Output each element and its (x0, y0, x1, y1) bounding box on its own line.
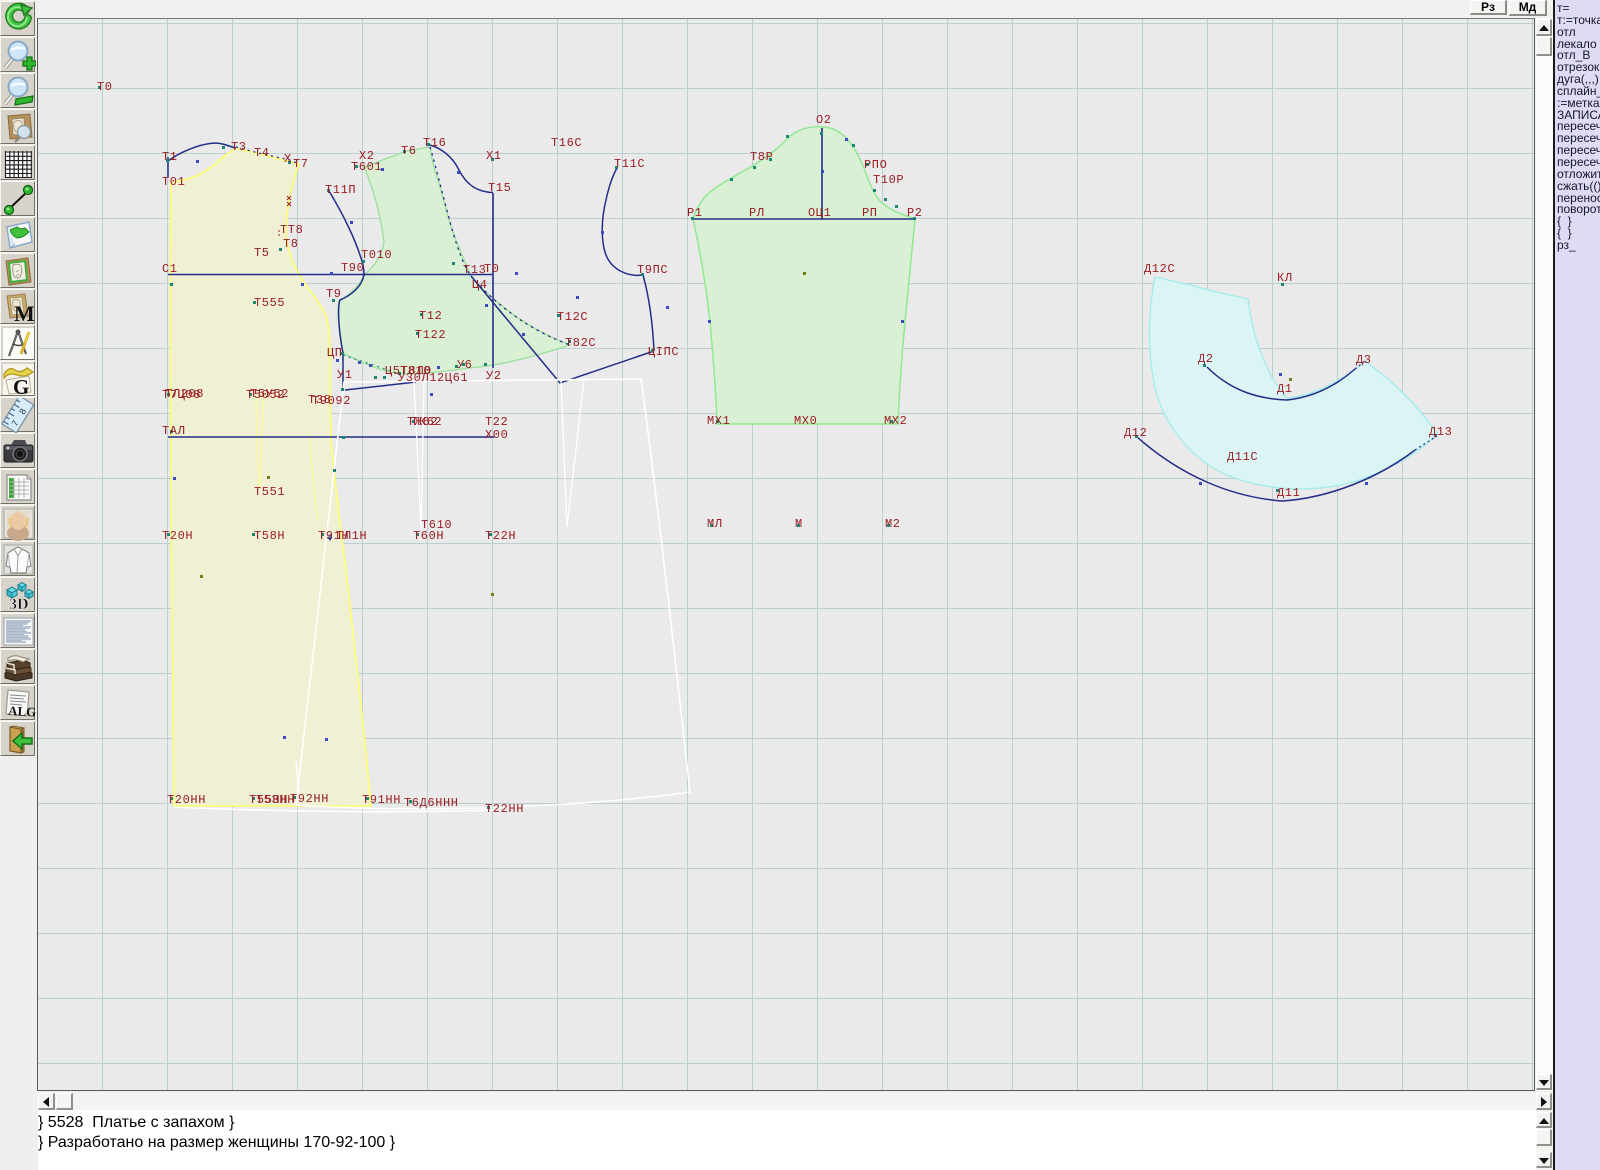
svg-text:Т555: Т555 (254, 296, 285, 310)
svg-text:Т11П: Т11П (325, 183, 356, 197)
svg-text:Т58Н: Т58Н (254, 529, 285, 543)
svg-text:Т92НН: Т92НН (290, 792, 329, 806)
svg-text:Д11С: Д11С (1227, 450, 1258, 464)
svg-text:Х: Х (284, 152, 292, 166)
svg-text:3D: 3D (9, 596, 29, 613)
svg-text:Т12С: Т12С (557, 310, 588, 324)
svg-text:РП: РП (862, 206, 878, 220)
svg-text:М2: М2 (885, 517, 901, 531)
svg-text:Т12: Т12 (419, 309, 442, 323)
svg-text:Д12: Д12 (1124, 426, 1147, 440)
svg-text:Т10Р: Т10Р (873, 173, 904, 187)
svg-text:МХ0: МХ0 (794, 414, 817, 428)
svg-text:Т60Н: Т60Н (413, 529, 444, 543)
svg-text:Т5: Т5 (254, 246, 270, 260)
svg-text:Т13: Т13 (463, 263, 486, 277)
svg-text:Д3: Д3 (1356, 353, 1372, 367)
svg-text:M: M (14, 301, 35, 325)
svg-text:Т0: Т0 (97, 80, 113, 94)
svg-text:Т20Н: Т20Н (162, 529, 193, 543)
svg-text:МХ1: МХ1 (707, 414, 730, 428)
svg-text:Т010: Т010 (361, 248, 392, 262)
svg-text:МЛ: МЛ (707, 517, 723, 531)
svg-text:Т9: Т9 (326, 287, 342, 301)
svg-text:ОЦ1: ОЦ1 (808, 206, 831, 220)
svg-text:Т9ПС: Т9ПС (637, 263, 668, 277)
svg-text:О2: О2 (816, 113, 832, 127)
svg-text:У1: У1 (337, 368, 353, 382)
svg-text:Д13: Д13 (1429, 425, 1452, 439)
svg-text:РЛ: РЛ (749, 206, 765, 220)
svg-text:У2: У2 (486, 369, 502, 383)
svg-text:ALG: ALG (8, 703, 36, 719)
svg-text:М: М (795, 517, 803, 531)
svg-text:Т122: Т122 (415, 328, 446, 342)
svg-text:G: G (13, 375, 29, 397)
svg-text:Д11: Д11 (1277, 486, 1300, 500)
svg-text:Т7: Т7 (293, 157, 309, 171)
svg-text:РПО: РПО (864, 158, 887, 172)
svg-text:Т16С: Т16С (551, 136, 582, 150)
svg-text:МХ2: МХ2 (884, 414, 907, 428)
svg-text:ЦIПС: ЦIПС (648, 345, 679, 359)
svg-text:Р1: Р1 (687, 206, 703, 220)
svg-text:Т601: Т601 (351, 160, 382, 174)
svg-text:Т0: Т0 (484, 262, 500, 276)
svg-text:ТЛ1Н: ТЛ1Н (336, 529, 367, 543)
svg-text:ТТ8: ТТ8 (280, 223, 303, 237)
svg-text:Т3: Т3 (231, 140, 247, 154)
svg-text:ЦП: ЦП (327, 346, 343, 360)
svg-text:С1: С1 (162, 262, 178, 276)
svg-text:Т01: Т01 (162, 175, 185, 189)
svg-text:Т1: Т1 (162, 150, 178, 164)
svg-text:ТЖ62: ТЖ62 (407, 415, 438, 429)
svg-text:Р2: Р2 (907, 206, 923, 220)
svg-text:Д1: Д1 (1277, 382, 1293, 396)
svg-text:Т8: Т8 (283, 237, 299, 251)
svg-text:Т11С: Т11С (614, 157, 645, 171)
svg-text:Д2: Д2 (1198, 352, 1214, 366)
svg-text:Т5052: Т5052 (246, 388, 285, 402)
svg-text:Т90: Т90 (341, 261, 364, 275)
svg-text:Ц4: Ц4 (472, 278, 488, 292)
svg-text:Т15: Т15 (488, 181, 511, 195)
svg-text:Т20НН: Т20НН (167, 793, 206, 807)
svg-text:Д12С: Д12С (1144, 262, 1175, 276)
svg-text:Т8Р: Т8Р (750, 150, 773, 164)
svg-text:ТАЛ: ТАЛ (162, 424, 185, 438)
svg-text:Т22НН: Т22НН (485, 802, 524, 816)
svg-text:Т16: Т16 (423, 136, 446, 150)
svg-text:Т7Ц08: Т7Ц08 (162, 388, 201, 402)
svg-text:Т6Д6ННН: Т6Д6ННН (404, 796, 459, 810)
svg-text:Т22Н: Т22Н (485, 529, 516, 543)
svg-text:Х00: Х00 (485, 428, 508, 442)
svg-text:Х1: Х1 (486, 149, 502, 163)
svg-text:Т6: Т6 (401, 144, 417, 158)
svg-text:КЛ: КЛ (1277, 271, 1293, 285)
svg-text:Т551: Т551 (254, 485, 285, 499)
svg-text:Т91НН: Т91НН (362, 793, 401, 807)
svg-text:Т4: Т4 (254, 146, 270, 160)
svg-text:У6: У6 (457, 358, 473, 372)
svg-text:Т82С: Т82С (565, 336, 596, 350)
svg-text:Т810: Т810 (400, 364, 431, 378)
svg-text:Т38: Т38 (308, 393, 331, 407)
svg-text:Т22: Т22 (485, 415, 508, 429)
